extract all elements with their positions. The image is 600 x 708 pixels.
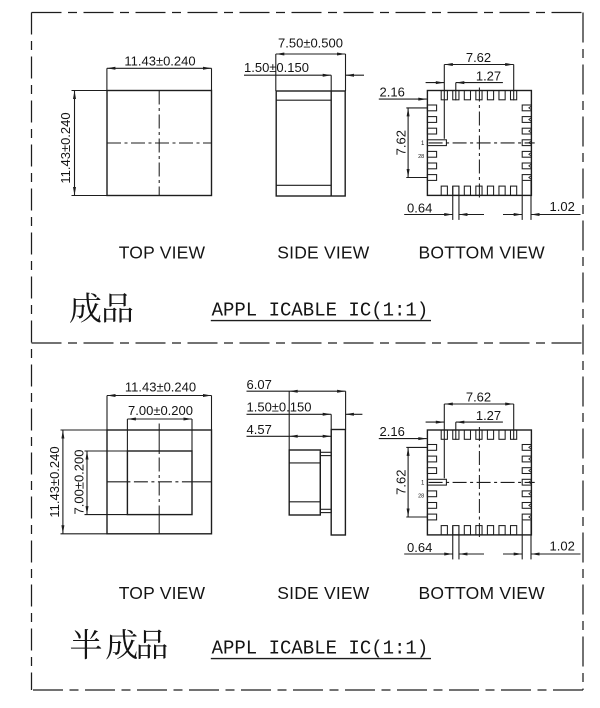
svg-text:1.27: 1.27 [476,68,501,83]
svg-text:APPL ICABLE IC(1:1): APPL ICABLE IC(1:1) [212,299,429,321]
svg-text:BOTTOM VIEW: BOTTOM VIEW [419,583,546,603]
svg-text:0.64: 0.64 [407,200,432,215]
svg-text:1.50±0.150: 1.50±0.150 [244,60,309,75]
svg-text:28: 28 [418,154,424,160]
svg-text:0.64: 0.64 [407,540,432,555]
svg-text:1.02: 1.02 [550,538,575,553]
svg-text:TOP VIEW: TOP VIEW [119,243,206,263]
svg-text:2.16: 2.16 [380,84,405,99]
svg-text:TOP VIEW: TOP VIEW [119,583,206,603]
svg-text:7.50±0.500: 7.50±0.500 [278,36,343,51]
svg-text:7.00±0.200: 7.00±0.200 [72,450,87,515]
svg-text:11.43±0.240: 11.43±0.240 [58,112,73,183]
svg-text:BOTTOM VIEW: BOTTOM VIEW [419,243,546,263]
svg-text:6.07: 6.07 [247,377,272,392]
svg-text:1.27: 1.27 [476,408,501,423]
svg-text:7.62: 7.62 [466,390,491,405]
svg-text:1.02: 1.02 [550,199,575,214]
svg-text:7.00±0.200: 7.00±0.200 [128,403,193,418]
svg-text:1.50±0.150: 1.50±0.150 [247,399,312,414]
svg-text:APPL ICABLE IC(1:1): APPL ICABLE IC(1:1) [212,637,429,659]
svg-text:2.16: 2.16 [380,424,405,439]
svg-text:11.43±0.240: 11.43±0.240 [124,54,195,69]
svg-text:11.43±0.240: 11.43±0.240 [125,380,196,395]
svg-text:SIDE VIEW: SIDE VIEW [277,583,370,603]
svg-text:28: 28 [418,494,424,500]
svg-text:7.62: 7.62 [466,50,491,65]
svg-text:7.62: 7.62 [393,130,408,155]
svg-text:7.62: 7.62 [393,470,408,495]
svg-text:4.57: 4.57 [247,422,272,437]
svg-text:SIDE VIEW: SIDE VIEW [277,243,370,263]
svg-text:11.43±0.240: 11.43±0.240 [47,446,62,517]
